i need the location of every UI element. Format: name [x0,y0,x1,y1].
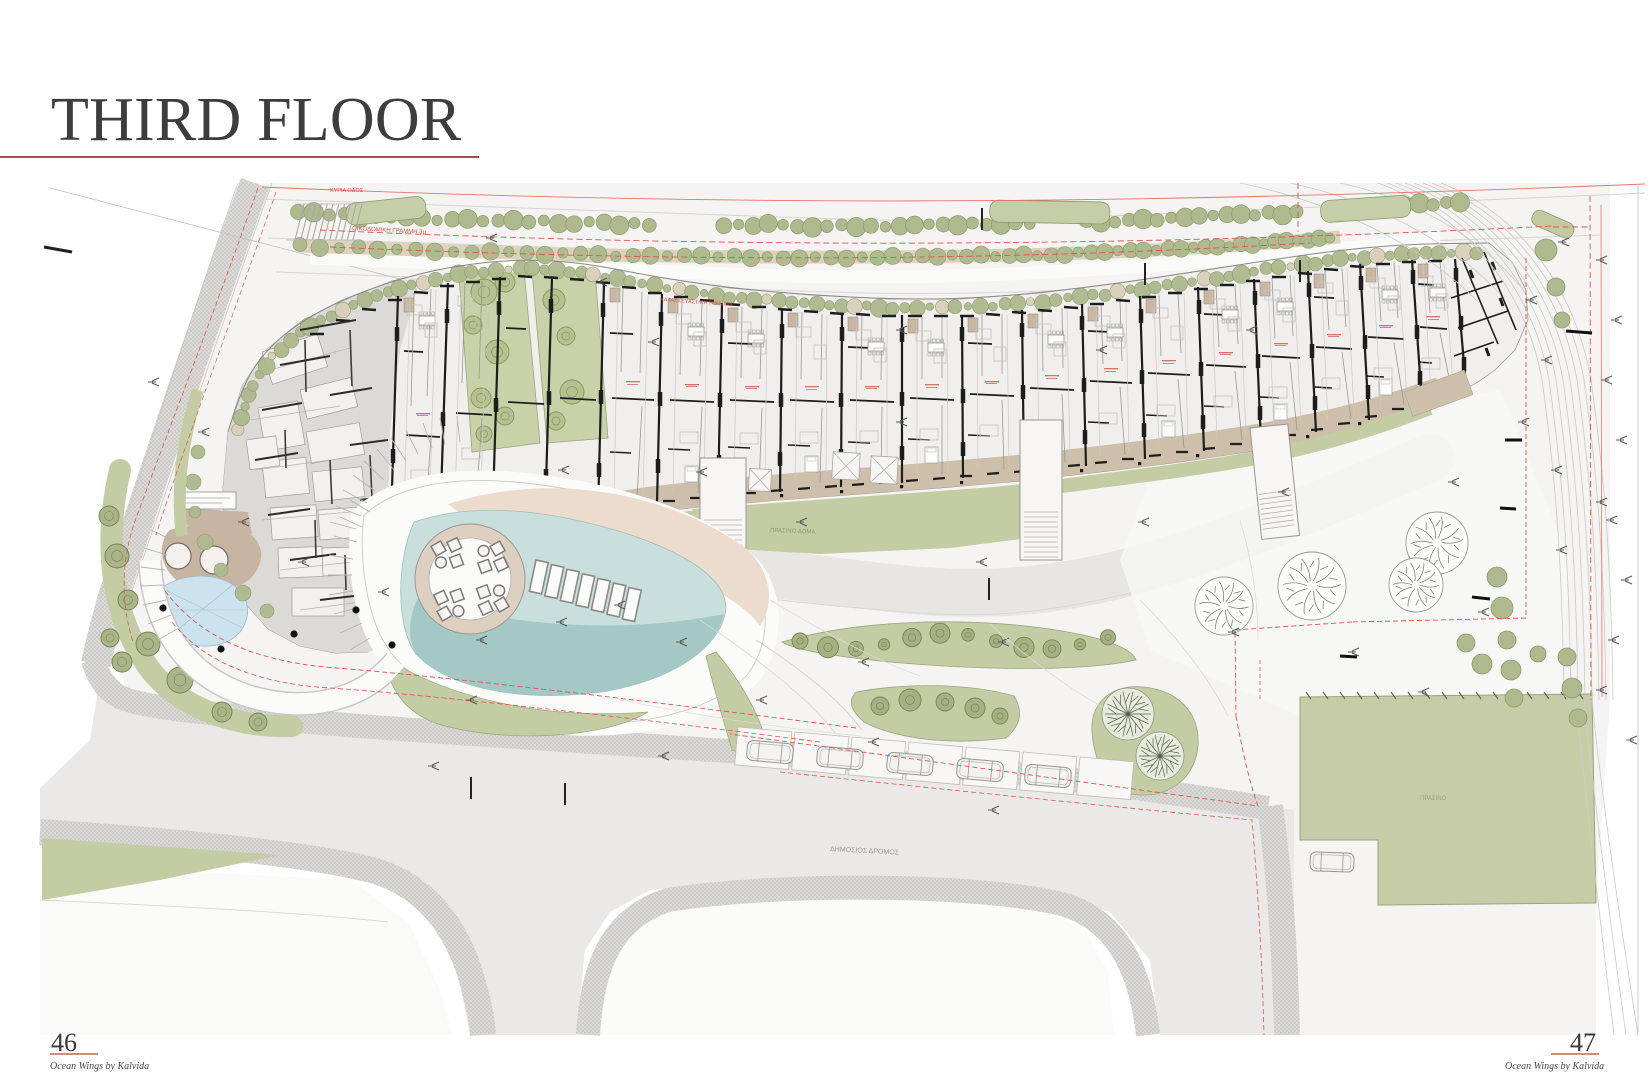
svg-text:ΚΥΡΙΑ OΔOΣ: ΚΥΡΙΑ OΔOΣ [330,188,364,194]
svg-text:ΠPAΣINO: ΠPAΣINO [1420,796,1447,802]
